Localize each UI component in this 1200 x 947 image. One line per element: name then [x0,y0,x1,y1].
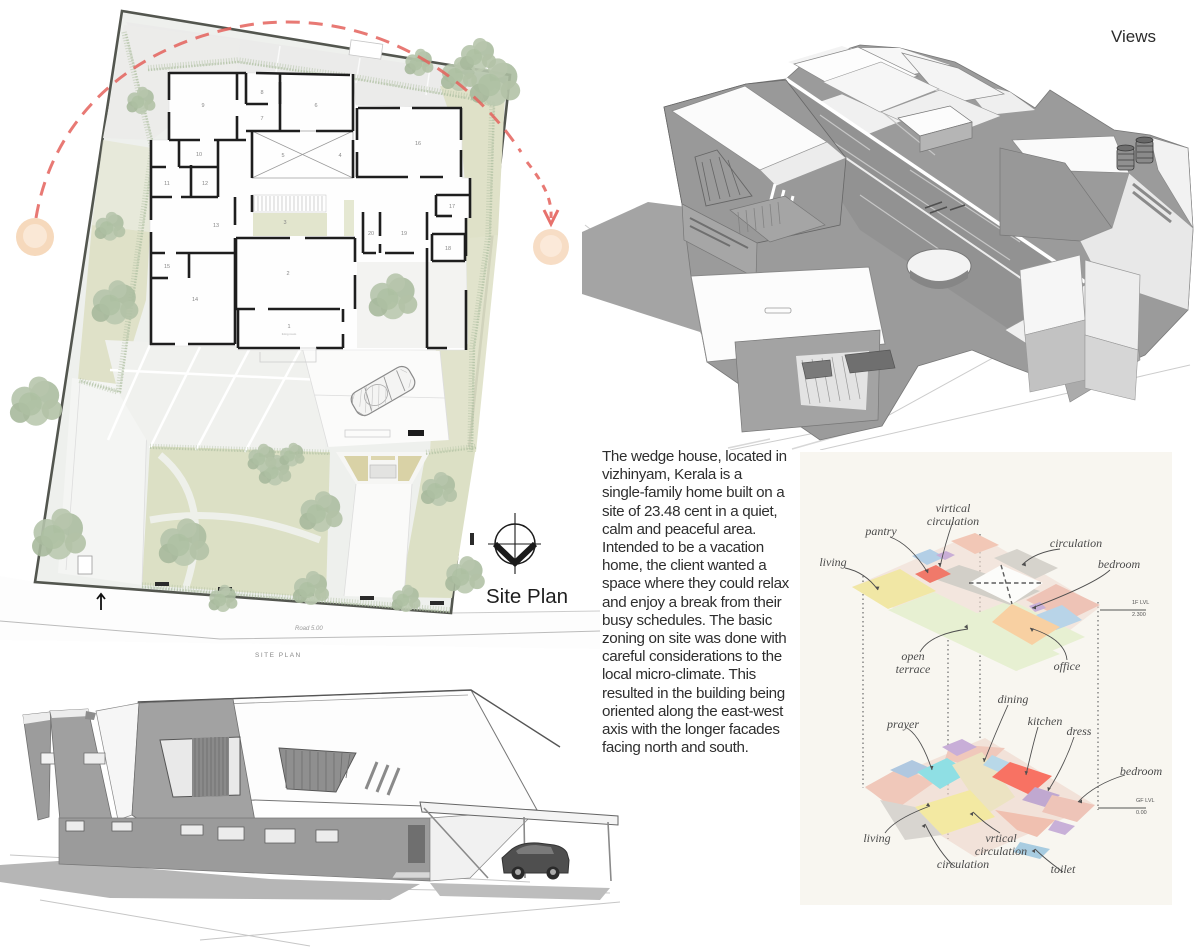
svg-text:7: 7 [260,116,263,122]
svg-text:19: 19 [401,231,407,237]
svg-text:2.300: 2.300 [1132,612,1146,618]
svg-text:4: 4 [338,153,341,159]
svg-text:vrtical: vrtical [985,831,1017,845]
svg-text:8: 8 [260,90,263,96]
svg-text:GF LVL: GF LVL [1136,798,1155,804]
svg-text:bedroom: bedroom [1098,557,1141,571]
svg-text:virtical: virtical [936,501,971,515]
svg-text:open: open [901,649,924,663]
svg-text:living room: living room [282,332,297,336]
svg-text:circulation: circulation [975,844,1027,858]
svg-text:prayer: prayer [886,717,919,731]
svg-text:3: 3 [283,220,286,226]
svg-text:dress: dress [1067,724,1092,738]
svg-text:circulation: circulation [1050,536,1102,550]
svg-text:1: 1 [287,324,290,330]
svg-text:circulation: circulation [927,514,979,528]
svg-text:10: 10 [196,152,202,158]
svg-text:12: 12 [202,181,208,187]
svg-text:17: 17 [449,204,455,210]
svg-text:13: 13 [213,223,219,229]
svg-text:pantry: pantry [864,524,897,538]
svg-text:20: 20 [368,231,374,237]
svg-text:bedroom: bedroom [1120,764,1163,778]
svg-text:18: 18 [445,246,451,252]
svg-text:5: 5 [281,153,284,159]
svg-text:1F LVL: 1F LVL [1132,600,1149,606]
svg-text:living: living [863,831,890,845]
svg-text:0.00: 0.00 [1136,810,1147,816]
svg-text:16: 16 [415,141,421,147]
svg-text:kitchen: kitchen [1028,714,1063,728]
svg-text:dining: dining [998,692,1029,706]
svg-text:9: 9 [201,103,204,109]
svg-text:14: 14 [192,297,198,303]
svg-text:11: 11 [164,181,170,187]
svg-text:circulation: circulation [937,857,989,871]
svg-text:living: living [819,555,846,569]
svg-text:Road 5.00: Road 5.00 [295,626,323,632]
svg-text:2: 2 [286,271,289,277]
svg-text:Site Plan: Site Plan [486,585,568,608]
svg-text:terrace: terrace [896,662,931,676]
svg-text:15: 15 [164,264,170,270]
svg-text:office: office [1054,659,1081,673]
svg-text:6: 6 [314,103,317,109]
svg-text:toilet: toilet [1051,862,1076,876]
